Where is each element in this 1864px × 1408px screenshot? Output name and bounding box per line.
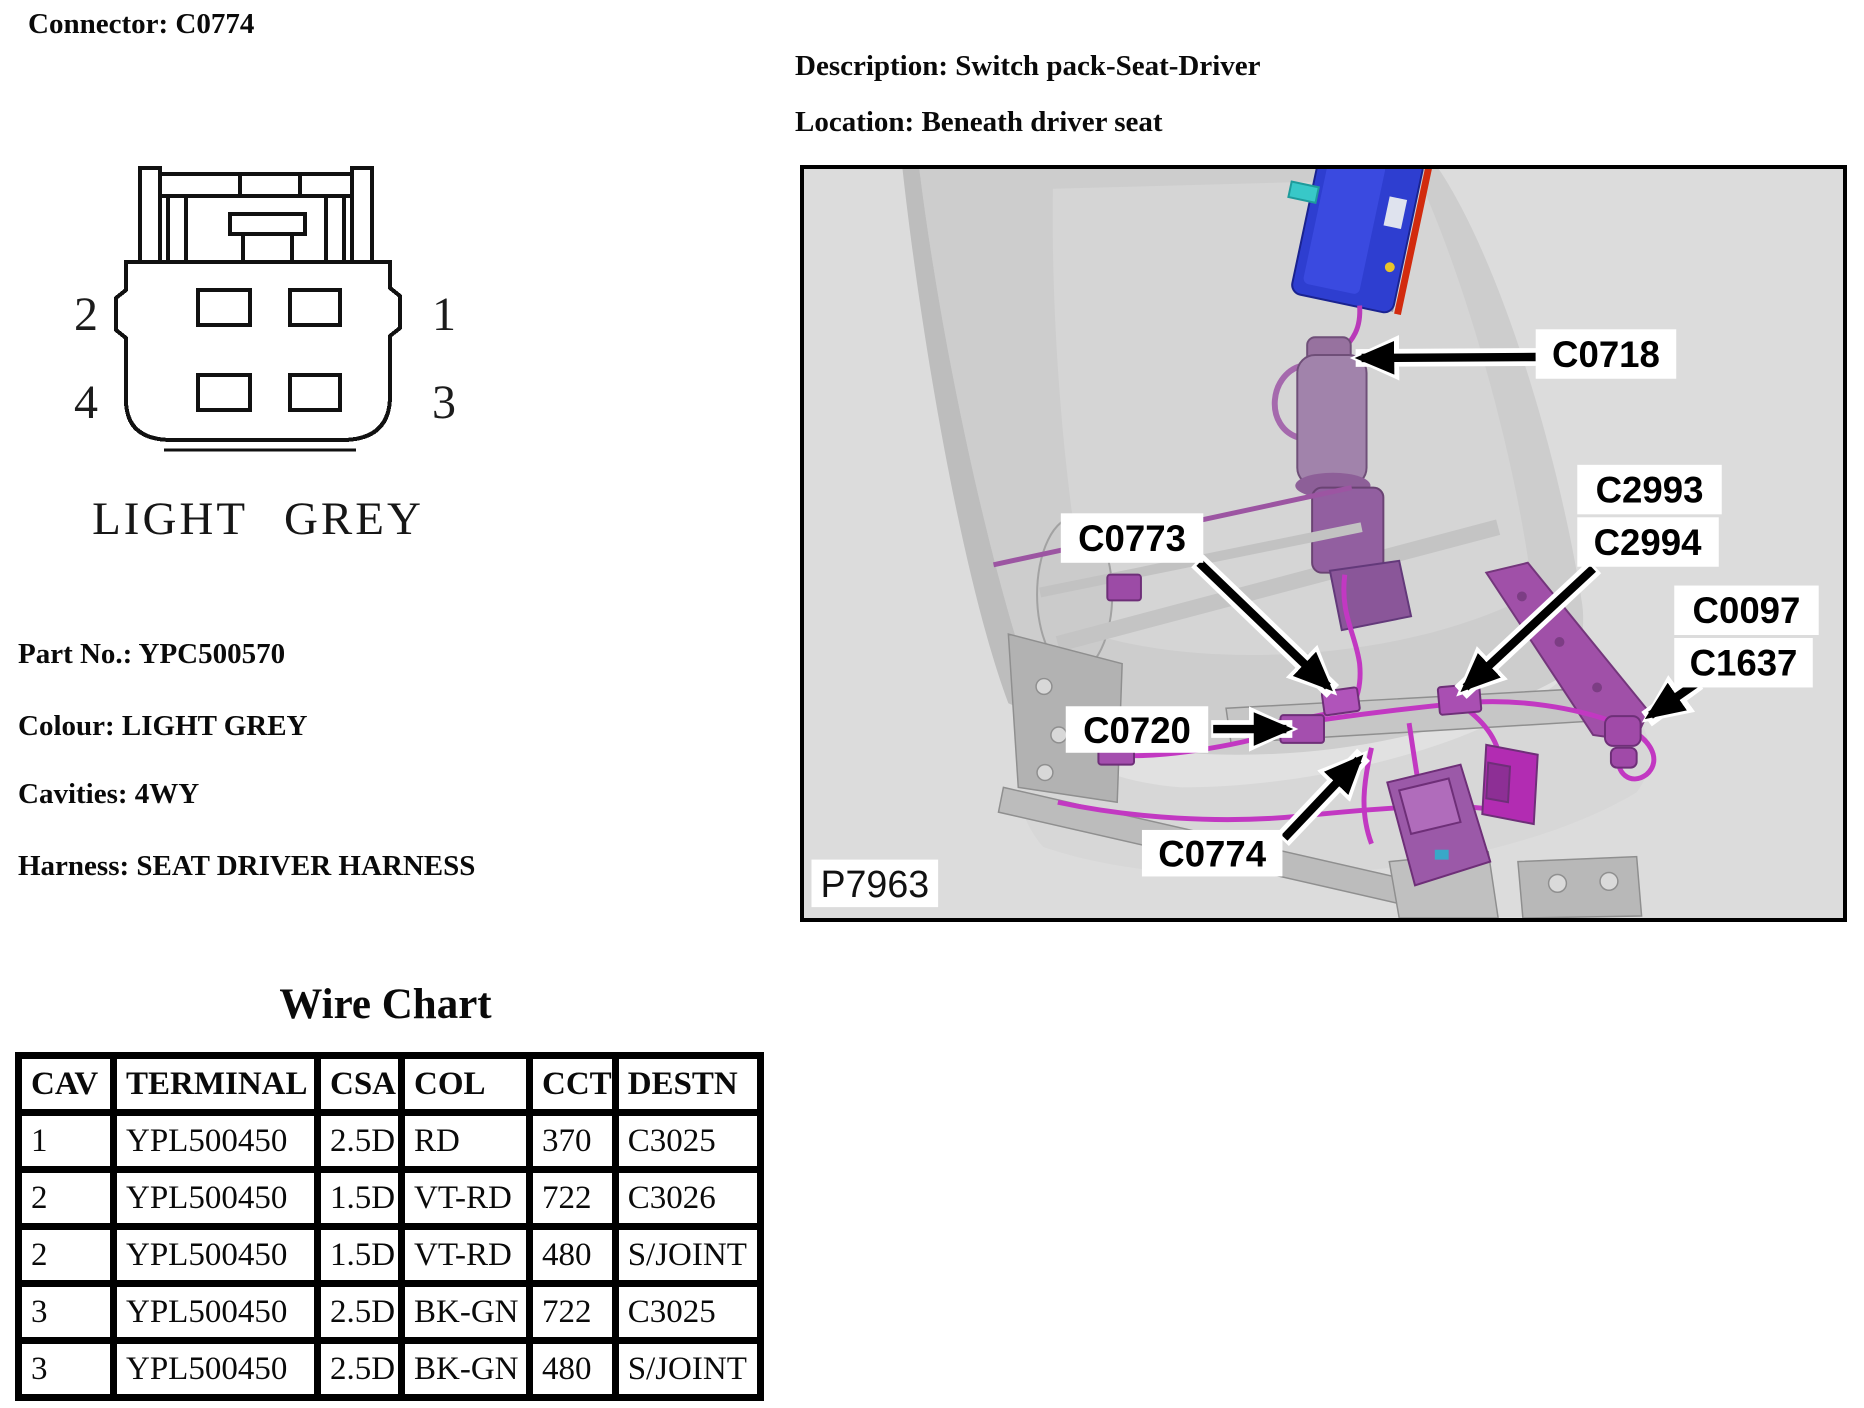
cell-cct: 722 [530, 1284, 616, 1341]
callout-c2994: C2994 [1594, 522, 1702, 563]
cell-terminal: YPL500450 [114, 1170, 318, 1227]
connector-face-diagram: 2 4 1 3 [60, 138, 490, 483]
cell-destn: S/JOINT [615, 1227, 760, 1284]
cell-cav: 3 [19, 1284, 114, 1341]
arrow-c0718 [1356, 357, 1538, 358]
connector-colour-caption: LIGHT GREY [58, 492, 458, 546]
figure-ref: P7963 [820, 863, 929, 905]
colour-line: Colour: LIGHT GREY [18, 710, 308, 743]
table-row: 3 YPL500450 2.5D BK-GN 480 S/JOINT [19, 1341, 761, 1398]
callout-c0097: C0097 [1693, 590, 1801, 631]
seat-figure: C0718 C2993 C2994 C0097 C1637 C0773 C072… [800, 165, 1847, 922]
cell-col: RD [402, 1113, 530, 1170]
col-header-col: COL [402, 1056, 530, 1113]
table-row: 2 YPL500450 1.5D VT-RD 480 S/JOINT [19, 1227, 761, 1284]
connector-face-svg: 2 4 1 3 [60, 138, 490, 483]
cell-col: BK-GN [402, 1284, 530, 1341]
cavities-line: Cavities: 4WY [18, 778, 199, 811]
cell-csa: 2.5D [318, 1341, 402, 1398]
cell-destn: C3025 [615, 1113, 760, 1170]
cell-cct: 480 [530, 1341, 616, 1398]
col-header-cav: CAV [19, 1056, 114, 1113]
col-header-csa: CSA [318, 1056, 402, 1113]
callout-c0718: C0718 [1552, 334, 1660, 375]
pin-number-1: 1 [432, 288, 456, 341]
callout-c0774: C0774 [1158, 834, 1266, 875]
cell-terminal: YPL500450 [114, 1227, 318, 1284]
table-row: 1 YPL500450 2.5D RD 370 C3025 [19, 1113, 761, 1170]
cell-terminal: YPL500450 [114, 1341, 318, 1398]
cell-cav: 2 [19, 1170, 114, 1227]
wire-chart-header-row: CAV TERMINAL CSA COL CCT DESTN [19, 1056, 761, 1113]
cell-cct: 722 [530, 1170, 616, 1227]
cell-csa: 1.5D [318, 1170, 402, 1227]
cell-col: VT-RD [402, 1170, 530, 1227]
cell-col: BK-GN [402, 1341, 530, 1398]
col-header-destn: DESTN [615, 1056, 760, 1113]
pin-number-4: 4 [74, 376, 98, 429]
cell-csa: 2.5D [318, 1284, 402, 1341]
callout-c1637: C1637 [1690, 643, 1798, 684]
description-line: Description: Switch pack-Seat-Driver [795, 50, 1261, 83]
pin-number-3: 3 [432, 376, 456, 429]
cell-cav: 2 [19, 1227, 114, 1284]
cell-cct: 370 [530, 1113, 616, 1170]
cell-csa: 2.5D [318, 1113, 402, 1170]
table-row: 3 YPL500450 2.5D BK-GN 722 C3025 [19, 1284, 761, 1341]
cell-cav: 1 [19, 1113, 114, 1170]
cell-col: VT-RD [402, 1227, 530, 1284]
col-header-terminal: TERMINAL [114, 1056, 318, 1113]
cell-terminal: YPL500450 [114, 1284, 318, 1341]
cell-destn: S/JOINT [615, 1341, 760, 1398]
callout-c0720: C0720 [1083, 710, 1191, 751]
pin-number-2: 2 [74, 288, 98, 341]
wire-chart-title: Wire Chart [15, 980, 756, 1029]
connector-outline [116, 168, 400, 450]
cell-terminal: YPL500450 [114, 1113, 318, 1170]
wire-chart-table: CAV TERMINAL CSA COL CCT DESTN 1 YPL5004… [15, 1052, 764, 1401]
harness-line: Harness: SEAT DRIVER HARNESS [18, 850, 475, 883]
part-number-line: Part No.: YPC500570 [18, 638, 285, 671]
location-line: Location: Beneath driver seat [795, 106, 1163, 139]
table-row: 2 YPL500450 1.5D VT-RD 722 C3026 [19, 1170, 761, 1227]
under-seat-connector-block [1482, 745, 1537, 824]
seat-figure-svg: C0718 C2993 C2994 C0097 C1637 C0773 C072… [804, 169, 1843, 918]
cell-destn: C3026 [615, 1170, 760, 1227]
callout-c0773: C0773 [1078, 518, 1186, 559]
cell-csa: 1.5D [318, 1227, 402, 1284]
col-header-cct: CCT [530, 1056, 616, 1113]
cell-cav: 3 [19, 1341, 114, 1398]
callout-c2993: C2993 [1596, 469, 1704, 510]
connector-title: Connector: C0774 [28, 8, 254, 41]
cell-destn: C3025 [615, 1284, 760, 1341]
cell-cct: 480 [530, 1227, 616, 1284]
manual-page: Connector: C0774 [0, 0, 1864, 1408]
